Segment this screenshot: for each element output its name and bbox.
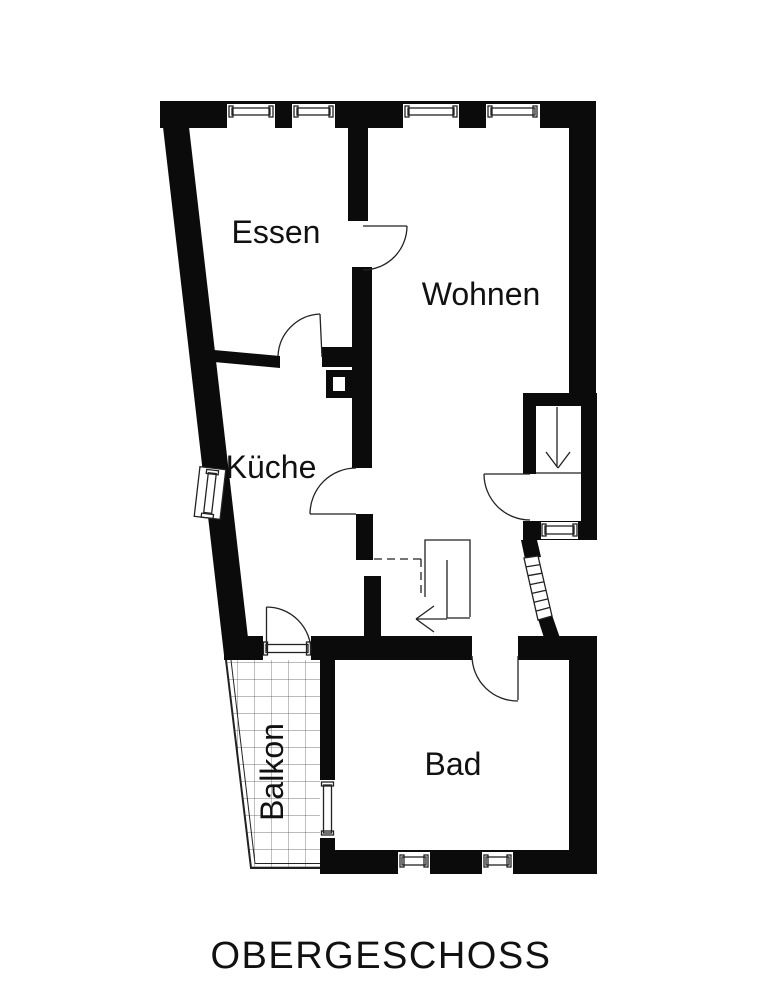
chimney-flue-hole <box>333 377 345 391</box>
wall-essen-kueche-slanted <box>214 350 280 368</box>
wall-essen-wohnen-upper <box>348 128 368 221</box>
wall-bad-bottom <box>320 850 597 874</box>
wall-bad-right <box>569 636 597 874</box>
wall-stair-right <box>581 406 597 540</box>
door-opening-balcony <box>263 636 311 660</box>
stair-break-line-dashed <box>374 559 421 594</box>
stair-direction-arrow-down <box>546 452 570 468</box>
door-kueche-hall <box>310 468 356 514</box>
floorplan-drawing: Essen Wohnen Küche Balkon Bad OBERGESCHO… <box>0 0 761 1000</box>
wall-essen-wohnen-lower <box>352 267 372 468</box>
staircase-room <box>536 407 581 473</box>
walls <box>160 101 597 874</box>
room-label-wohnen: Wohnen <box>422 276 541 312</box>
wall-kueche-hall-lower <box>364 576 381 642</box>
door-opening-bad <box>472 636 518 660</box>
page-title: OBERGESCHOSS <box>210 935 551 977</box>
wall-bad-left <box>320 660 335 874</box>
wall-stair-top <box>523 393 597 406</box>
room-labels: Essen Wohnen Küche Balkon Bad <box>226 214 541 821</box>
floorplan-page: Essen Wohnen Küche Balkon Bad OBERGESCHO… <box>0 0 761 1000</box>
wall-wohnen-right <box>569 128 596 393</box>
wall-left-slanted <box>160 101 250 655</box>
wall-kueche-hall-upper <box>356 514 373 560</box>
wall-junction-block <box>322 347 372 367</box>
door-essen-wohnen <box>363 226 407 270</box>
door-arc <box>472 656 518 701</box>
hall-stair-pictogram <box>374 540 470 632</box>
door-hall-bad <box>472 656 518 701</box>
door-arc <box>278 314 320 356</box>
stair-inner-edge <box>447 560 470 618</box>
stair-symbols <box>374 407 581 632</box>
stair-direction-arrow-left <box>416 606 447 632</box>
room-label-essen: Essen <box>232 214 321 250</box>
door-arc <box>310 468 356 514</box>
window-symbol-kueche <box>194 467 226 520</box>
wall-stair-left <box>523 406 536 474</box>
door-arc <box>363 226 407 270</box>
room-label-bad: Bad <box>425 746 482 782</box>
window-symbol-slanted-ladder <box>524 556 552 620</box>
door-leaf <box>320 314 322 357</box>
window-opening <box>320 780 335 838</box>
room-label-balkon: Balkon <box>254 723 290 821</box>
door-essen-kueche <box>278 314 322 357</box>
door-arc <box>484 474 530 520</box>
room-label-kueche: Küche <box>226 449 317 485</box>
door-entrance <box>484 474 530 520</box>
